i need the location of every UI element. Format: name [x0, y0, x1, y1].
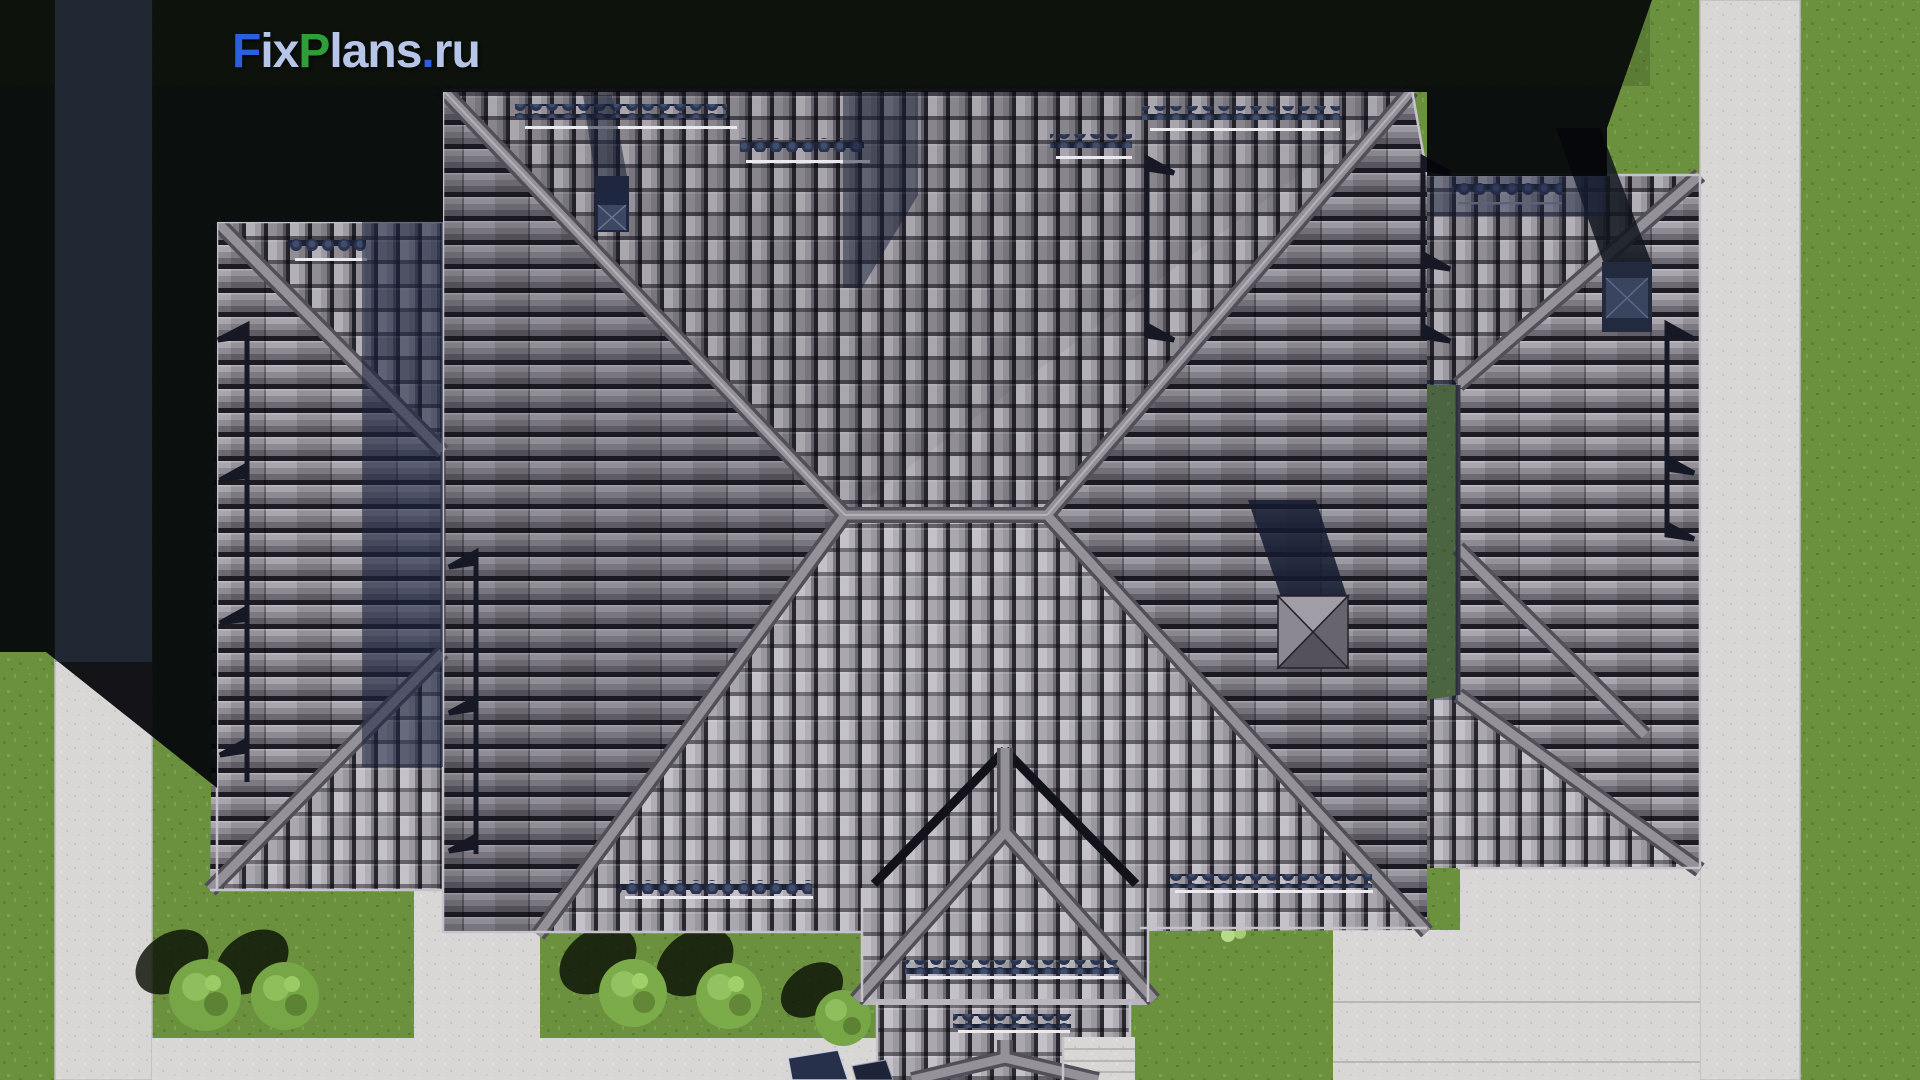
right-walkway [1700, 0, 1800, 1080]
scene-canvas [0, 0, 1920, 1080]
logo-segment: ru [434, 25, 480, 78]
logo-segment: P [298, 25, 329, 78]
roof-vent-pyramid [1278, 596, 1348, 668]
chimney-vent [1602, 262, 1652, 332]
porch-tier-eave-band [862, 999, 1148, 1005]
bush [169, 959, 241, 1031]
shadowed-walkway-tint [55, 0, 152, 662]
chimney-vent [595, 176, 629, 232]
logo-segment: F [232, 25, 260, 78]
bush [251, 962, 319, 1030]
shadow-on-right-wing-top [1430, 175, 1605, 217]
logo-segment: . [421, 25, 433, 78]
shadow-on-right-wing-west [1427, 380, 1458, 700]
logo-segment: ix [260, 25, 298, 78]
logo-segment: lans [329, 25, 421, 78]
bush [599, 959, 667, 1027]
shadow-on-left-wing [362, 222, 443, 767]
fixplans-logo: FixPlans.ru [232, 24, 480, 79]
aerial-house-render: FixPlans.ru [0, 0, 1920, 1080]
bush [696, 963, 762, 1029]
